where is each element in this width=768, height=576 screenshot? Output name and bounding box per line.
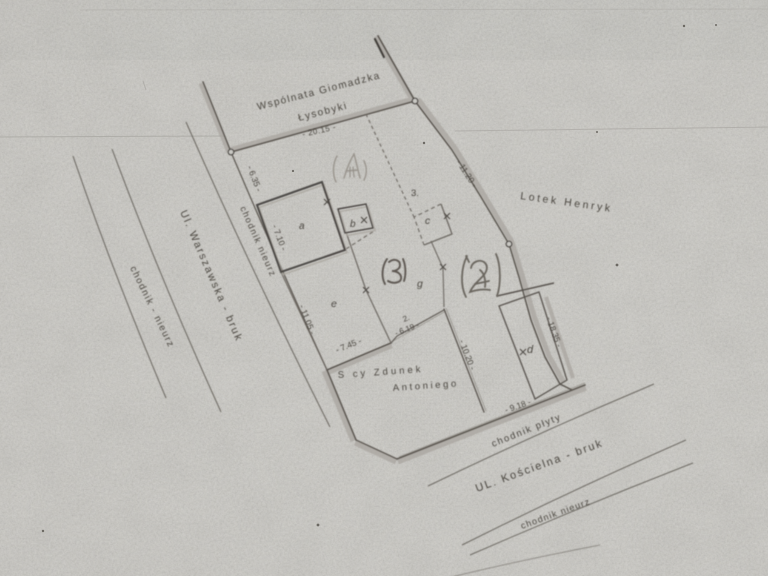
svg-text:3.: 3. xyxy=(411,188,419,199)
svg-text:c: c xyxy=(425,216,430,227)
svg-text:a: a xyxy=(299,221,305,232)
svg-text:d: d xyxy=(527,344,534,356)
svg-text:b: b xyxy=(350,219,356,230)
svg-text:g: g xyxy=(417,278,423,290)
svg-text:e: e xyxy=(331,298,337,310)
